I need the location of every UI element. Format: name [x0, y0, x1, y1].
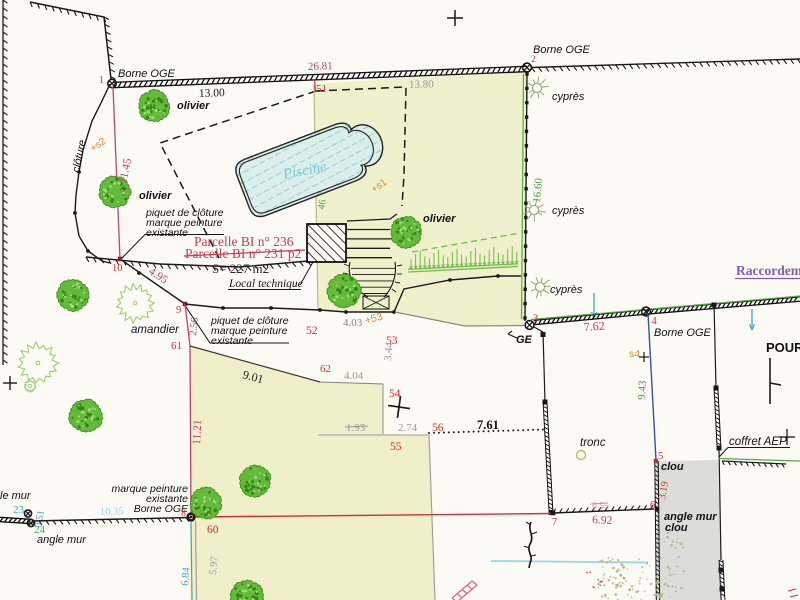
- svg-text:46: 46: [316, 199, 329, 211]
- svg-text:Borne OGE: Borne OGE: [533, 44, 591, 56]
- svg-text:existante: existante: [146, 227, 188, 239]
- svg-text:6.92: 6.92: [592, 514, 613, 527]
- svg-text:Raccordem: Raccordem: [736, 263, 800, 278]
- svg-text:3.44: 3.44: [383, 341, 396, 361]
- svg-text:4: 4: [652, 316, 658, 327]
- svg-text:7: 7: [552, 517, 557, 528]
- svg-text:1.93: 1.93: [346, 422, 366, 434]
- svg-text:9: 9: [176, 305, 181, 316]
- svg-text:7.62: 7.62: [583, 319, 605, 334]
- svg-text:1: 1: [99, 75, 104, 86]
- svg-text:10: 10: [112, 263, 123, 274]
- svg-text:existante: existante: [211, 335, 253, 347]
- svg-text:9.43: 9.43: [636, 380, 649, 400]
- svg-text:62: 62: [320, 363, 331, 375]
- svg-text:4.03: 4.03: [343, 317, 363, 329]
- svg-text:52: 52: [306, 325, 318, 337]
- svg-text:2.56: 2.56: [188, 317, 201, 336]
- svg-text:cyprès: cyprès: [552, 205, 585, 217]
- svg-text:GE: GE: [516, 334, 533, 346]
- svg-text:13.00: 13.00: [199, 87, 226, 100]
- svg-text:4.04: 4.04: [344, 370, 364, 382]
- svg-text:coffret AEP: coffret AEP: [729, 436, 787, 448]
- svg-text:60: 60: [207, 524, 219, 536]
- svg-text:5.97: 5.97: [208, 556, 221, 575]
- svg-text:10.35: 10.35: [100, 506, 124, 518]
- svg-text:6: 6: [650, 500, 655, 511]
- svg-text:11.21: 11.21: [191, 419, 204, 445]
- svg-text:54: 54: [389, 388, 401, 400]
- svg-text:tronc: tronc: [580, 437, 606, 449]
- svg-text:cyprès: cyprès: [550, 284, 583, 296]
- svg-text:Borne OGE: Borne OGE: [654, 327, 712, 339]
- svg-text:angle mur: angle mur: [37, 534, 87, 546]
- svg-text:le mur: le mur: [0, 490, 32, 502]
- svg-text:51: 51: [316, 83, 327, 95]
- svg-text:61: 61: [171, 340, 182, 352]
- svg-text:13.80: 13.80: [409, 79, 434, 91]
- svg-text:56: 56: [432, 422, 444, 434]
- svg-text:clou: clou: [665, 522, 688, 534]
- svg-text:23: 23: [13, 504, 25, 516]
- svg-text:Borne OGE: Borne OGE: [118, 68, 176, 80]
- svg-text:clou: clou: [661, 461, 684, 473]
- svg-text:olivier: olivier: [177, 100, 210, 112]
- svg-text:olivier: olivier: [139, 190, 172, 202]
- svg-text:POUR: POUR: [766, 340, 800, 355]
- svg-text:S= 227 m2: S= 227 m2: [212, 261, 269, 276]
- svg-text:amandier: amandier: [131, 324, 180, 336]
- svg-text:26.81: 26.81: [308, 60, 333, 73]
- svg-text:Local technique: Local technique: [228, 278, 303, 290]
- svg-text:2.74: 2.74: [398, 422, 418, 434]
- svg-text:olivier: olivier: [423, 213, 456, 225]
- svg-text:8: 8: [181, 509, 186, 519]
- svg-text:55: 55: [390, 441, 402, 453]
- svg-text:2: 2: [531, 55, 536, 65]
- svg-text:cyprès: cyprès: [552, 91, 585, 103]
- svg-text:16.60: 16.60: [531, 177, 545, 203]
- svg-text:3: 3: [533, 314, 538, 325]
- svg-text:6.84: 6.84: [180, 566, 193, 586]
- svg-text:7.61: 7.61: [477, 418, 499, 432]
- svg-text:s4: s4: [629, 348, 640, 360]
